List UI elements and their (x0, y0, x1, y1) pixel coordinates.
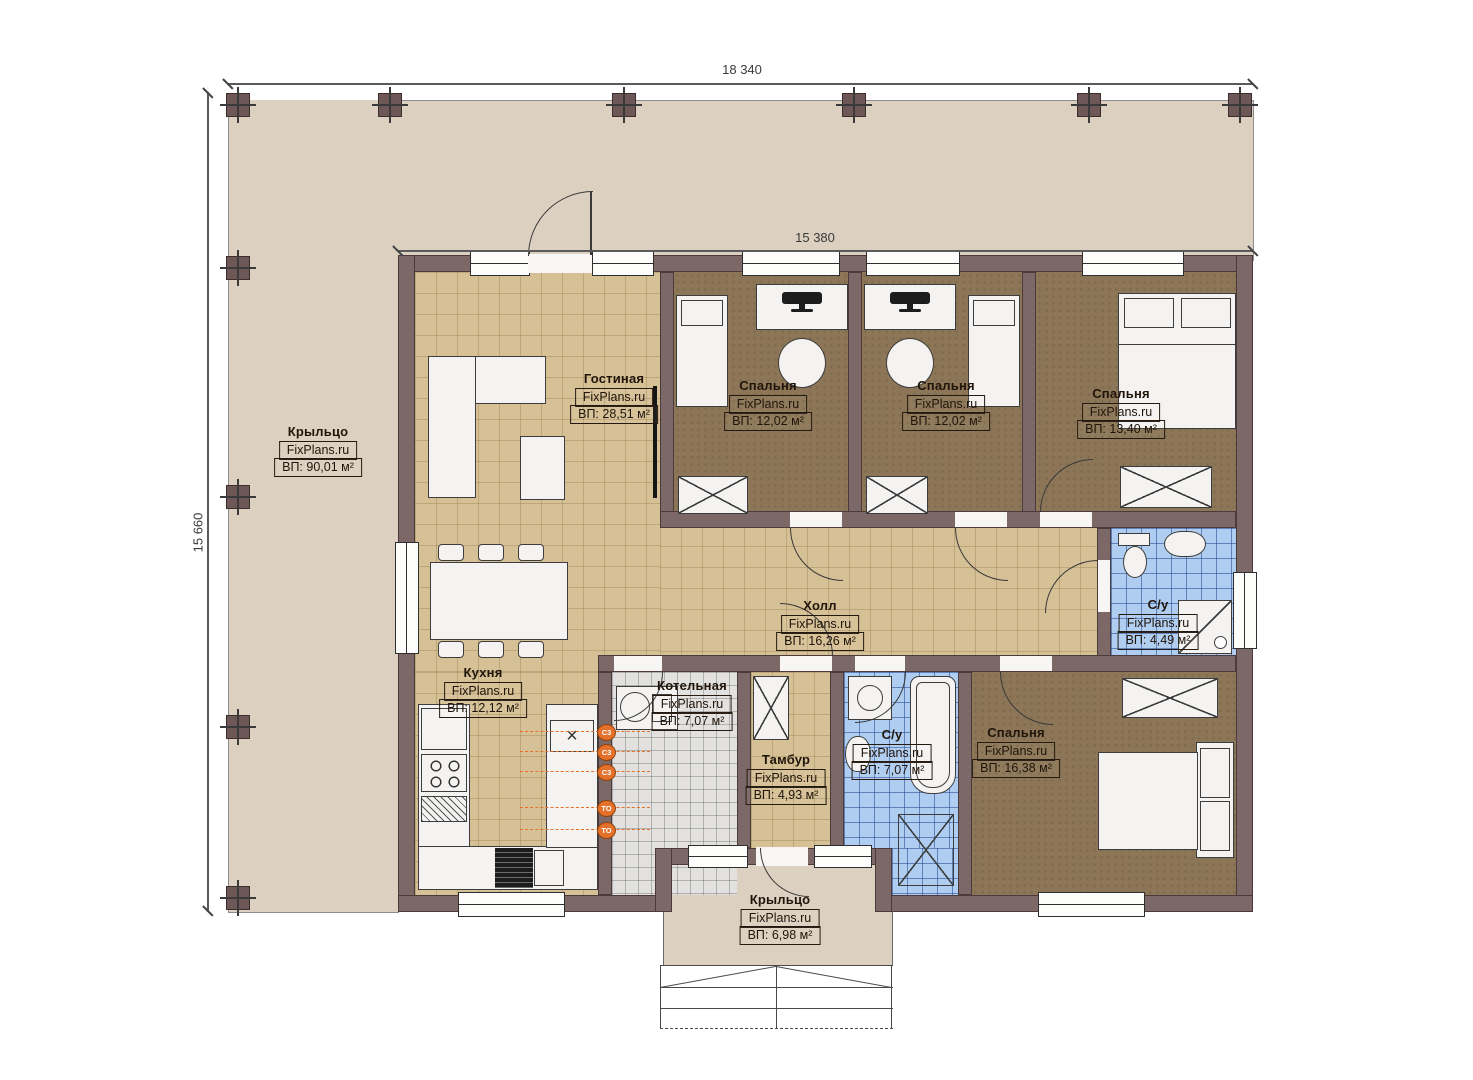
door-opening-bedroom3 (1040, 512, 1092, 527)
porch-steps-diagonal (660, 966, 776, 988)
wardrobe (866, 476, 928, 514)
room-area: ВП: 7,07 м² (852, 761, 933, 780)
floor-plan: × С3 С3 С3 ТО ТО Крыльцо FixPlans.ru ВП:… (0, 0, 1473, 1080)
pillow (1200, 748, 1230, 798)
room-area: ВП: 90,01 м² (274, 458, 362, 477)
door-opening-bedroom1 (790, 512, 842, 527)
dimension-value-top: 18 340 (722, 62, 762, 77)
porch-column (843, 94, 865, 116)
door-opening-boiler (614, 656, 662, 671)
window (470, 251, 530, 276)
room-label-bedroom1: Спальня FixPlans.ru ВП: 12,02 м² (724, 378, 812, 431)
wall-bathroom-bedroom4 (958, 672, 972, 895)
monitor (782, 292, 822, 304)
room-brand: FixPlans.ru (729, 395, 808, 414)
room-area: ВП: 13,40 м² (1077, 420, 1165, 439)
porch-steps-diagonal (776, 966, 892, 988)
equipment-line (520, 751, 650, 752)
equipment-line (520, 771, 650, 772)
window (1233, 572, 1257, 649)
kitchen-sink: × (550, 720, 594, 752)
dimension-value-inner-top: 15 380 (795, 230, 835, 245)
wall-bedroom1-bedroom2 (848, 272, 862, 528)
wardrobe (1122, 678, 1218, 718)
room-area: ВП: 16,26 м² (776, 632, 864, 651)
room-area: ВП: 12,02 м² (902, 412, 990, 431)
window (814, 845, 872, 868)
window (458, 892, 565, 917)
equipment-line (520, 807, 650, 808)
room-label-bedroom2: Спальня FixPlans.ru ВП: 12,02 м² (902, 378, 990, 431)
door-opening-corridor (780, 656, 832, 671)
wall-living-bedroom1 (660, 272, 674, 528)
room-brand: FixPlans.ru (1119, 614, 1198, 633)
stove (421, 754, 467, 792)
room-name: Котельная (657, 678, 727, 693)
porch-column (379, 94, 401, 116)
dimension-line-left (207, 92, 209, 912)
room-label-bathroom-big: С/у FixPlans.ru ВП: 7,07 м² (852, 727, 933, 780)
floor-drain-zone (898, 814, 954, 886)
room-name: Спальня (739, 378, 797, 393)
wardrobe (1120, 466, 1212, 508)
window (866, 251, 960, 276)
room-label-bedroom3: Спальня FixPlans.ru ВП: 13,40 м² (1077, 386, 1165, 439)
sofa (428, 356, 476, 498)
wardrobe (678, 476, 748, 514)
wall-porch-stub-right (875, 848, 892, 912)
room-brand: FixPlans.ru (977, 742, 1056, 761)
wall-kitchen-boiler (598, 672, 612, 895)
porch-steps-center (776, 965, 777, 1029)
window (742, 251, 840, 276)
wall-hall-south (598, 655, 1236, 672)
dining-chair (478, 641, 504, 658)
dining-chair (518, 641, 544, 658)
room-brand: FixPlans.ru (653, 695, 732, 714)
room-name: Гостиная (584, 371, 644, 386)
room-label-bedroom4: Спальня FixPlans.ru ВП: 16,38 м² (972, 725, 1060, 778)
dining-chair (518, 544, 544, 561)
room-brand: FixPlans.ru (747, 769, 826, 788)
room-brand: FixPlans.ru (907, 395, 986, 414)
monitor (890, 292, 930, 304)
porch-column (227, 94, 249, 116)
room-name: Крыльцо (750, 892, 811, 907)
door-opening-main (528, 254, 592, 273)
window (1038, 892, 1145, 917)
porch-steps-side (891, 965, 892, 1029)
room-name: Крыльцо (288, 424, 349, 439)
door-opening-bedroom4 (1000, 656, 1052, 671)
blanket-line (1119, 344, 1235, 345)
room-name: С/у (1148, 597, 1169, 612)
room-name: Спальня (917, 378, 975, 393)
porch-column (227, 887, 249, 909)
closet (753, 676, 789, 740)
equipment-tag: С3 (597, 764, 616, 781)
dining-table (430, 562, 568, 640)
porch-column (1078, 94, 1100, 116)
room-brand: FixPlans.ru (781, 615, 860, 634)
room-area: ВП: 4,93 м² (746, 786, 827, 805)
room-area: ВП: 12,02 м² (724, 412, 812, 431)
dishwasher (495, 848, 533, 888)
kitchen-appliance (534, 850, 564, 886)
equipment-line (520, 829, 650, 830)
door-opening-bathroom-small (1098, 560, 1110, 612)
dimension-value-left: 15 660 (190, 513, 205, 553)
room-brand: FixPlans.ru (741, 909, 820, 928)
monitor-base (899, 309, 921, 312)
room-area: ВП: 6,98 м² (740, 926, 821, 945)
room-area: ВП: 4,49 м² (1118, 631, 1199, 650)
dining-chair (438, 641, 464, 658)
room-name: С/у (882, 727, 903, 742)
room-area: ВП: 16,38 м² (972, 759, 1060, 778)
room-label-porch-bottom: Крыльцо FixPlans.ru ВП: 6,98 м² (740, 892, 821, 945)
room-brand: FixPlans.ru (444, 682, 523, 701)
room-label-vestibule: Тамбур FixPlans.ru ВП: 4,93 м² (746, 752, 827, 805)
pillow (1181, 298, 1231, 328)
room-name: Холл (803, 598, 836, 613)
room-area: ВП: 12,12 м² (439, 699, 527, 718)
door-opening-bathroom-big (855, 656, 905, 671)
dining-chair (478, 544, 504, 561)
floor-hall (660, 525, 1097, 658)
room-brand: FixPlans.ru (853, 744, 932, 763)
room-name: Спальня (1092, 386, 1150, 401)
window (395, 542, 419, 654)
pillow (1124, 298, 1174, 328)
room-label-kitchen: Кухня FixPlans.ru ВП: 12,12 м² (439, 665, 527, 718)
room-area: ВП: 28,51 м² (570, 405, 658, 424)
wall-bedroom2-bedroom3 (1022, 272, 1036, 528)
porch-column (227, 257, 249, 279)
oven (421, 796, 467, 822)
room-label-hall: Холл FixPlans.ru ВП: 16,26 м² (776, 598, 864, 651)
room-brand: FixPlans.ru (279, 441, 358, 460)
wall-vestibule-bathroom (830, 672, 844, 848)
door-leaf-main (590, 191, 592, 255)
door-opening-bedroom2 (955, 512, 1007, 527)
wall-porch-stub-left (655, 848, 672, 912)
washbasin (1164, 531, 1206, 557)
room-label-living: Гостиная FixPlans.ru ВП: 28,51 м² (570, 371, 658, 424)
equipment-tag: С3 (597, 724, 616, 741)
room-name: Кухня (464, 665, 503, 680)
equipment-line (520, 731, 650, 732)
room-label-porch-left: Крыльцо FixPlans.ru ВП: 90,01 м² (274, 424, 362, 477)
equipment-tag: ТО (597, 822, 616, 839)
equipment-tag: С3 (597, 744, 616, 761)
dimension-line-inner-top (398, 250, 1253, 252)
room-name: Спальня (987, 725, 1045, 740)
double-bed (1098, 752, 1198, 850)
room-brand: FixPlans.ru (575, 388, 654, 407)
pillow (681, 300, 723, 326)
toilet (1123, 546, 1147, 578)
room-name: Тамбур (762, 752, 810, 767)
window (1082, 251, 1184, 276)
pillow (973, 300, 1015, 326)
porch-column (613, 94, 635, 116)
porch-column (227, 486, 249, 508)
room-label-bathroom-small: С/у FixPlans.ru ВП: 4,49 м² (1118, 597, 1199, 650)
room-label-boiler: Котельная FixPlans.ru ВП: 7,07 м² (652, 678, 733, 731)
porch-steps-side (660, 965, 661, 1029)
floor-porch-left (228, 100, 399, 913)
coffee-table (520, 436, 565, 500)
window (592, 251, 654, 276)
dining-chair (438, 544, 464, 561)
pillow (1200, 801, 1230, 851)
porch-column (1229, 94, 1251, 116)
window (688, 845, 748, 868)
toilet-tank (1118, 533, 1150, 546)
room-brand: FixPlans.ru (1082, 403, 1161, 422)
equipment-tag: ТО (597, 800, 616, 817)
porch-column (227, 716, 249, 738)
dimension-line-top (228, 83, 1253, 85)
room-area: ВП: 7,07 м² (652, 712, 733, 731)
monitor-base (791, 309, 813, 312)
